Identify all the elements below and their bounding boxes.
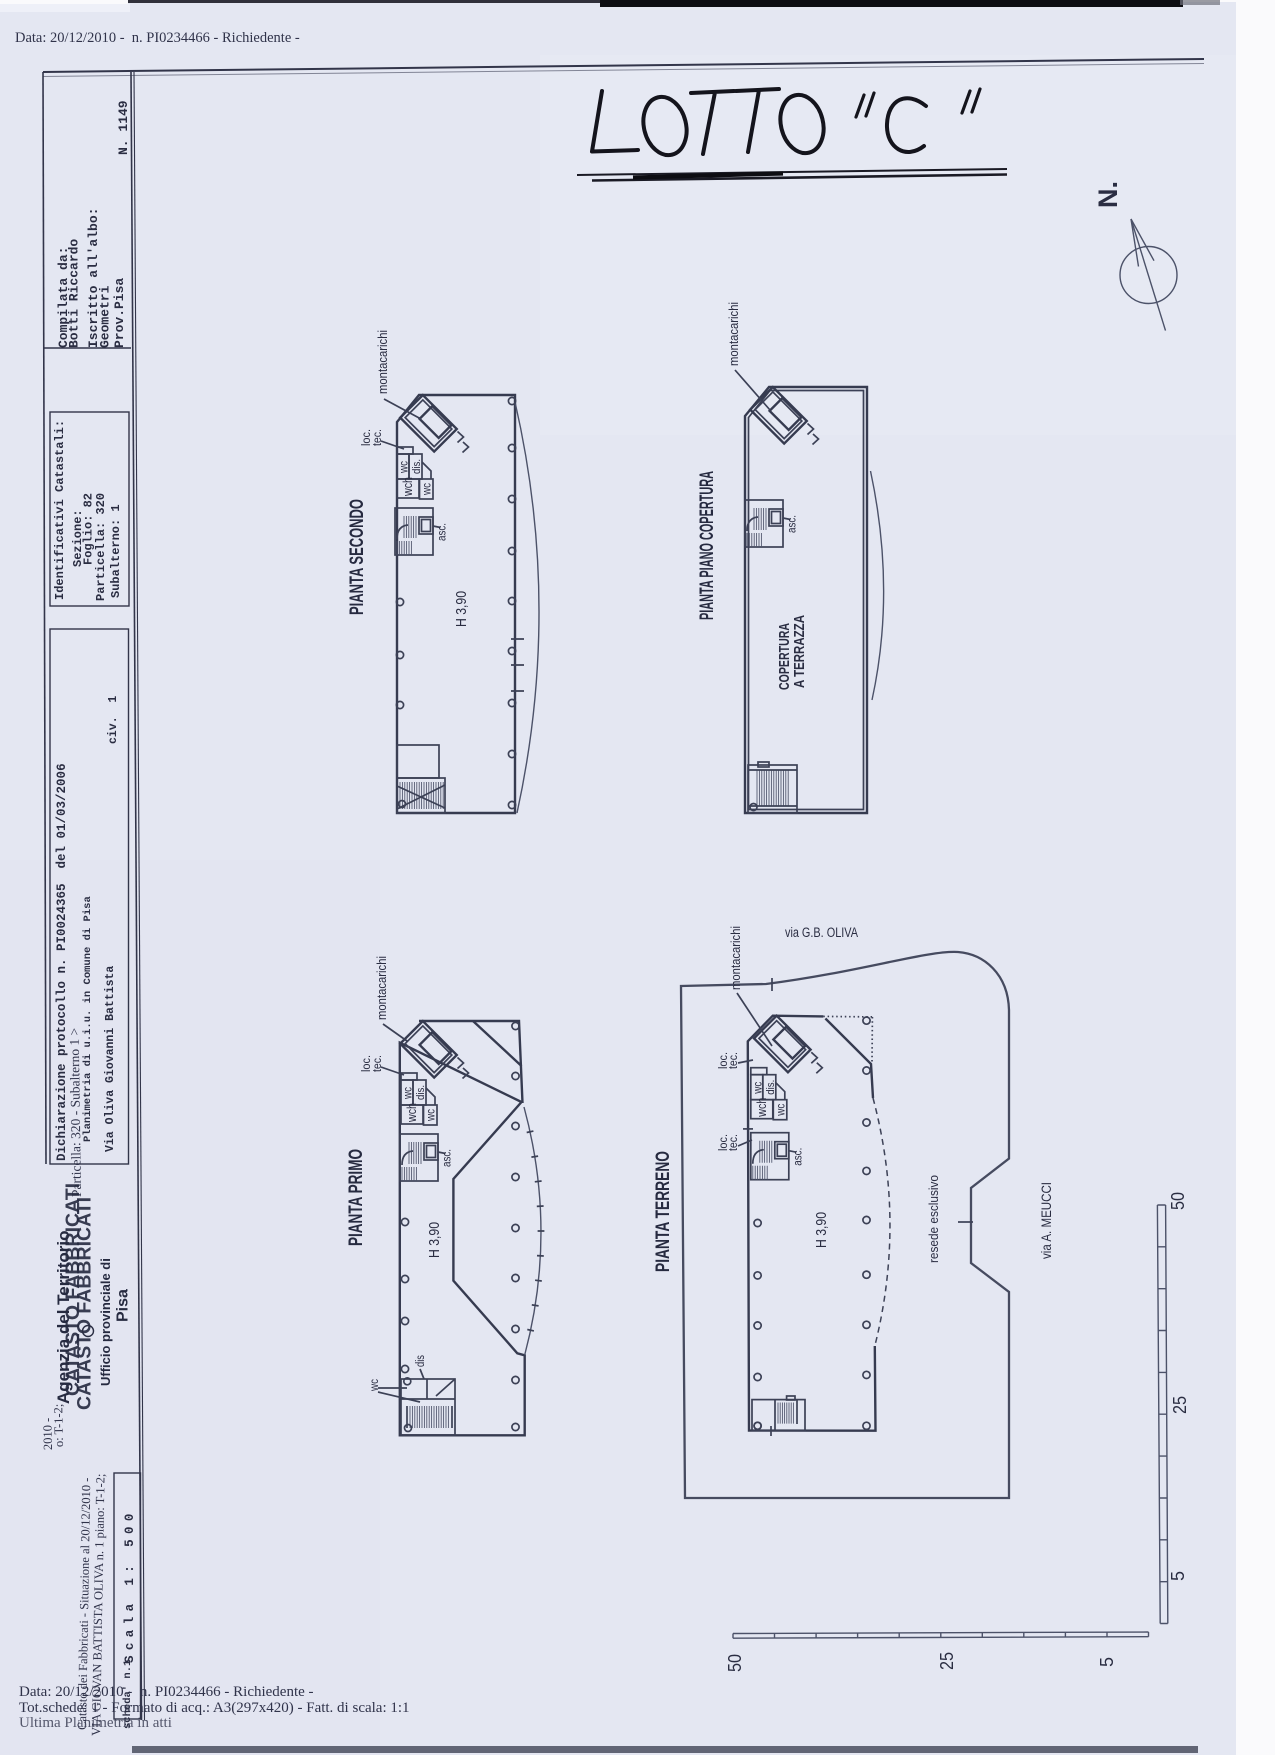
svg-text:50: 50	[1167, 1192, 1188, 1210]
svg-text:5: 5	[1096, 1657, 1117, 1667]
svg-text:PIANTA TERRENO: PIANTA TERRENO	[653, 1151, 674, 1272]
svg-text:Prov.Pisa: Prov.Pisa	[112, 278, 127, 348]
svg-text:tec.: tec.	[372, 429, 384, 446]
svg-text:CATASTO FABBRICATI: CATASTO FABBRICATI	[74, 1197, 96, 1410]
svg-text:resede esclusivo: resede esclusivo	[926, 1175, 941, 1263]
svg-text:wc: wc	[367, 1379, 381, 1392]
svg-text:Pisa: Pisa	[115, 1289, 132, 1322]
svg-text:tec.: tec.	[728, 1134, 740, 1151]
svg-text:H 3,90: H 3,90	[813, 1212, 830, 1248]
svg-text:Tot.schede: 1 - Formato di acq: Tot.schede: 1 - Formato di acq.: A3(297x…	[19, 1700, 410, 1716]
svg-text:Particella: 320 - Subalterno 1: Particella: 320 - Subalterno 1 >	[67, 1028, 84, 1197]
svg-text:H 3,90: H 3,90	[426, 1222, 443, 1258]
svg-text:Via Oliva Giovanni Battista: Via Oliva Giovanni Battista	[104, 966, 117, 1152]
svg-text:o: T-1-2;: o: T-1-2;	[51, 1404, 66, 1448]
svg-text:Ultima Planimetria in atti: Ultima Planimetria in atti	[19, 1715, 172, 1731]
svg-text:Subalterno: 1: Subalterno: 1	[109, 504, 123, 598]
svg-text:N.: N.	[1093, 181, 1123, 208]
svg-text:25: 25	[1169, 1396, 1190, 1414]
svg-text:dis: dis	[415, 1355, 427, 1367]
svg-text:montacarichi: montacarichi	[729, 926, 743, 990]
svg-text:montacarichi: montacarichi	[376, 330, 390, 394]
svg-text:via G.B. OLIVA: via G.B. OLIVA	[785, 925, 858, 940]
svg-text:Ufficio provinciale di: Ufficio provinciale di	[98, 1258, 113, 1386]
svg-text:tec.: tec.	[728, 1052, 740, 1069]
svg-text:Data: 20/12/2010 - n. PI02344: Data: 20/12/2010 - n. PI0234466 - Richie…	[15, 30, 300, 46]
svg-text:PIANTA PIANO COPERTURA: PIANTA PIANO COPERTURA	[697, 471, 718, 620]
svg-text:via A. MEUCCI: via A. MEUCCI	[1038, 1182, 1054, 1259]
svg-text:Geometri: Geometri	[98, 285, 113, 348]
svg-text:montacarichi: montacarichi	[727, 302, 741, 366]
svg-text:Identificativi Catastali:: Identificativi Catastali:	[53, 420, 67, 600]
svg-text:Scala 1: 500: Scala 1: 500	[123, 1508, 137, 1663]
svg-text:5: 5	[1167, 1571, 1188, 1581]
svg-text:tec.: tec.	[372, 1055, 384, 1072]
svg-text:25: 25	[936, 1652, 957, 1670]
svg-text:civ. 1: civ. 1	[107, 696, 120, 744]
svg-text:50: 50	[724, 1654, 745, 1672]
svg-text:Data: 20/12/2010 - n. PI02344: Data: 20/12/2010 - n. PI0234466 - Richie…	[19, 1684, 314, 1700]
svg-text:N. 1149: N. 1149	[116, 100, 131, 155]
svg-text:H 3,90: H 3,90	[453, 591, 470, 627]
svg-text:Particella: 320: Particella: 320	[94, 493, 108, 601]
svg-text:PIANTA SECONDO: PIANTA SECONDO	[347, 499, 368, 615]
svg-text:montacarichi: montacarichi	[375, 956, 389, 1020]
svg-text:PIANTA PRIMO: PIANTA PRIMO	[346, 1149, 367, 1246]
svg-text:A TERRAZZA: A TERRAZZA	[791, 615, 808, 688]
svg-text:Botti Riccardo: Botti Riccardo	[67, 239, 82, 348]
svg-text:Planimetria di u.i.u. in Comun: Planimetria di u.i.u. in Comune di Pisa	[82, 896, 94, 1142]
